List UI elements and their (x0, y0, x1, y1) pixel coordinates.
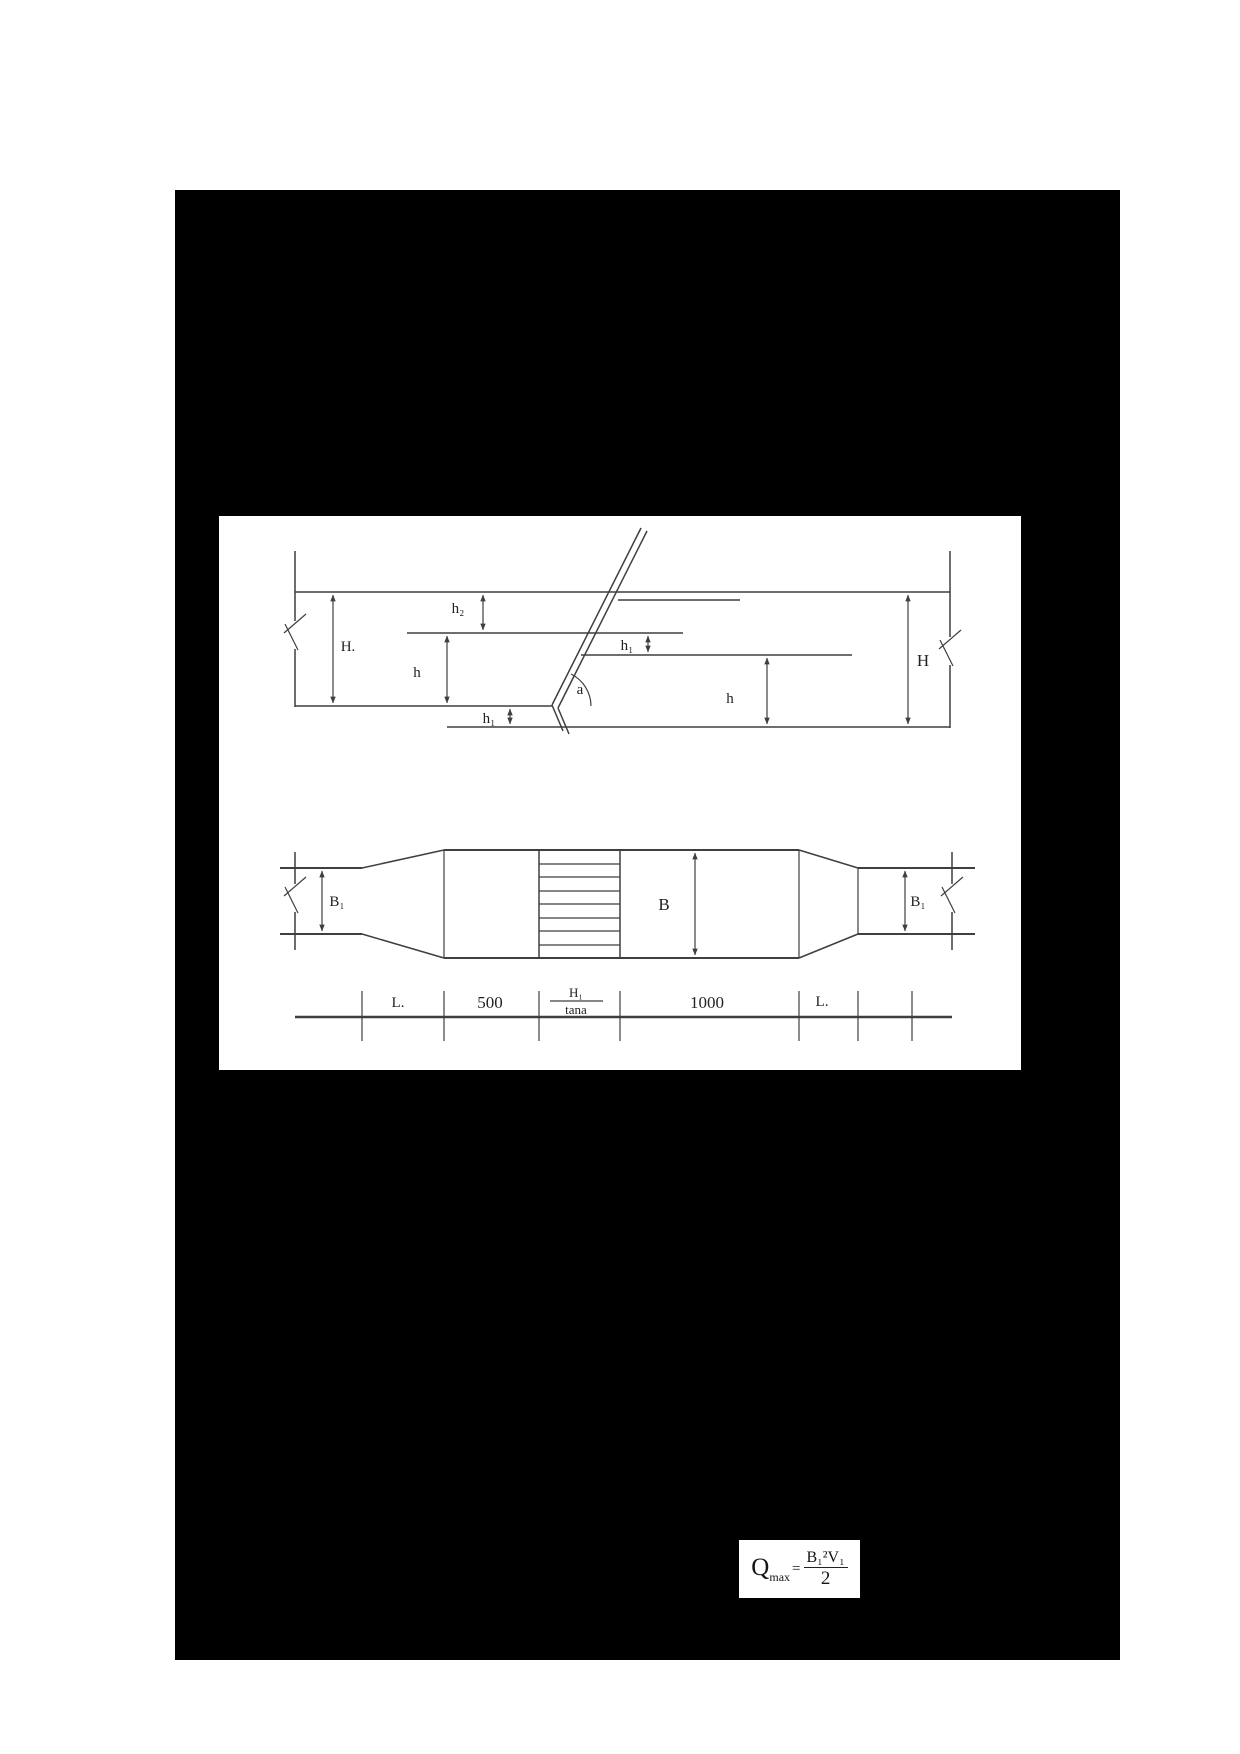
label-upstream-head: H. (341, 639, 356, 655)
label-h1-right: h₁ (621, 638, 634, 654)
engineering-diagram-svg: H. h₂ h h₁ a h H h₁ (219, 516, 1021, 1070)
formula-q-term: Qmax (751, 1555, 790, 1583)
label-h1-bottom: h₁ (483, 711, 496, 727)
label-b1-left: B₁ (329, 894, 344, 910)
profile-dimension-lines (333, 595, 908, 724)
formula-q-subscript: max (769, 1570, 790, 1584)
formula-numerator: B₁²V₁ (804, 1550, 848, 1568)
profile-view: H. h₂ h h₁ a h H h₁ (284, 528, 961, 734)
dimension-row: L. 500 H₁ tana 1000 L. (295, 985, 952, 1041)
label-l-left: L. (392, 995, 405, 1011)
chamber-walls (444, 850, 799, 958)
screen-hatch-section (539, 850, 620, 958)
fraction-h-over-tana: H₁ tana (550, 985, 603, 1017)
label-b1-right: B₁ (910, 894, 925, 910)
label-1000: 1000 (690, 993, 724, 1012)
expansion-transition-walls (362, 850, 444, 958)
plan-view: B₁ B B₁ (280, 850, 975, 958)
label-h2: h₂ (452, 601, 465, 617)
screen-bars (539, 864, 620, 945)
plan-labels: B₁ B B₁ (329, 894, 925, 914)
inclined-gate (552, 528, 647, 734)
label-angle-alpha: a (577, 682, 584, 698)
label-h-downstream: h (726, 691, 734, 707)
fraction-numerator: H₁ (569, 985, 583, 1000)
formula-box: Qmax = B₁²V₁ 2 (739, 1540, 860, 1598)
label-500: 500 (477, 993, 503, 1012)
label-l-right: L. (816, 994, 829, 1010)
formula-fraction: B₁²V₁ 2 (804, 1550, 848, 1588)
figure-panel: H. h₂ h h₁ a h H h₁ (219, 516, 1021, 1070)
profile-labels: H. h₂ h h₁ a h H h₁ (341, 601, 929, 727)
fraction-denominator: tana (565, 1002, 587, 1017)
formula-denominator: 2 (821, 1568, 831, 1588)
contraction-transition-walls (799, 850, 858, 958)
formula-q-base: Q (751, 1554, 769, 1581)
label-h-upstream: h (413, 665, 421, 681)
gate-line-outer (552, 528, 641, 731)
label-b-center: B (658, 895, 669, 914)
document-page: H. h₂ h h₁ a h H h₁ (0, 0, 1240, 1754)
label-downstream-head: H (917, 651, 929, 670)
formula-equals-sign: = (792, 1562, 800, 1577)
